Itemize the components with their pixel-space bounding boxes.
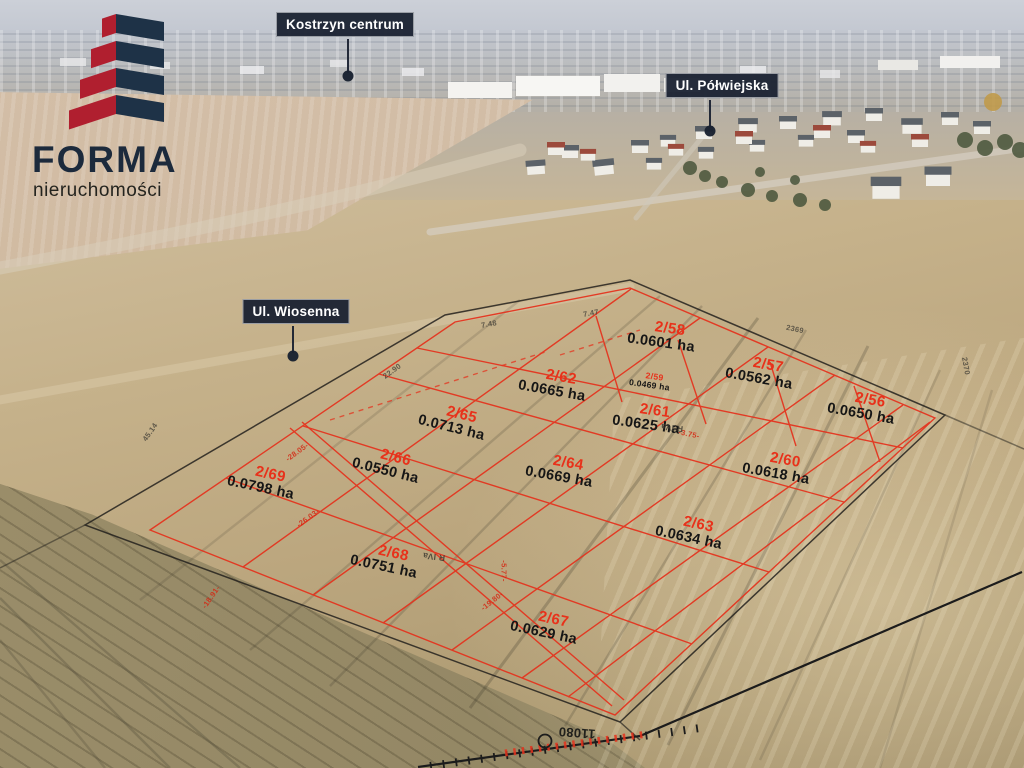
brand-name: FORMA: [32, 141, 220, 178]
pin-line-polwiejska: [709, 100, 711, 128]
brand-logo-icon: [30, 8, 180, 134]
survey-point-symbol: [539, 735, 552, 748]
pin-dot-kostrzyn: [343, 71, 354, 82]
pin-line-kostrzyn: [347, 39, 349, 73]
pin-label-polwiejska: Ul. Półwiejska: [666, 73, 779, 98]
aerial-plot-map: FORMA nieruchomości Kostrzyn centrum Ul.…: [0, 0, 1024, 768]
pin-label-wiosenna: Ul. Wiosenna: [242, 299, 349, 324]
black-boundary: [0, 280, 1024, 740]
pin-label-kostrzyn-centrum: Kostrzyn centrum: [276, 12, 414, 37]
dimension-label: -5.77-: [500, 560, 509, 581]
pin-dot-polwiejska: [705, 126, 716, 137]
survey-point-label: 11080: [558, 724, 596, 742]
pin-line-wiosenna: [292, 326, 294, 353]
brand-logo: FORMA nieruchomości: [30, 8, 220, 200]
pin-dot-wiosenna: [288, 351, 299, 362]
brand-subtitle: nieruchomości: [33, 181, 220, 200]
